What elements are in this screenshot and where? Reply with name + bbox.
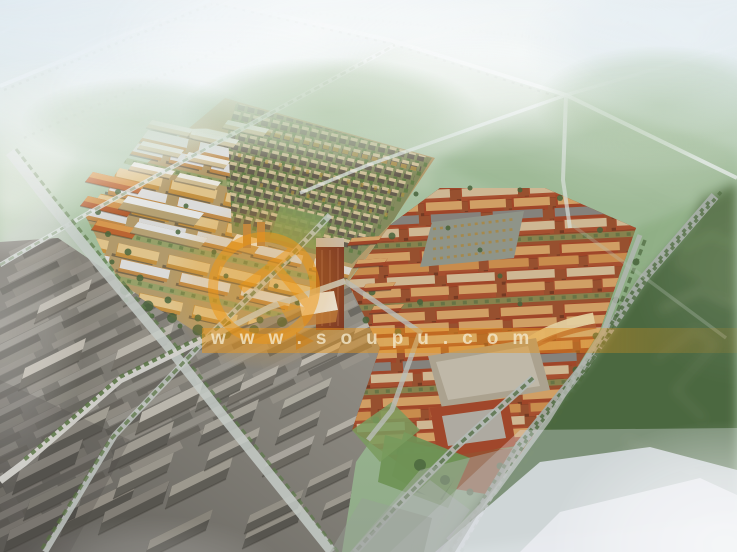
svg-text:www.soupu.com: www.soupu.com [210, 328, 543, 349]
